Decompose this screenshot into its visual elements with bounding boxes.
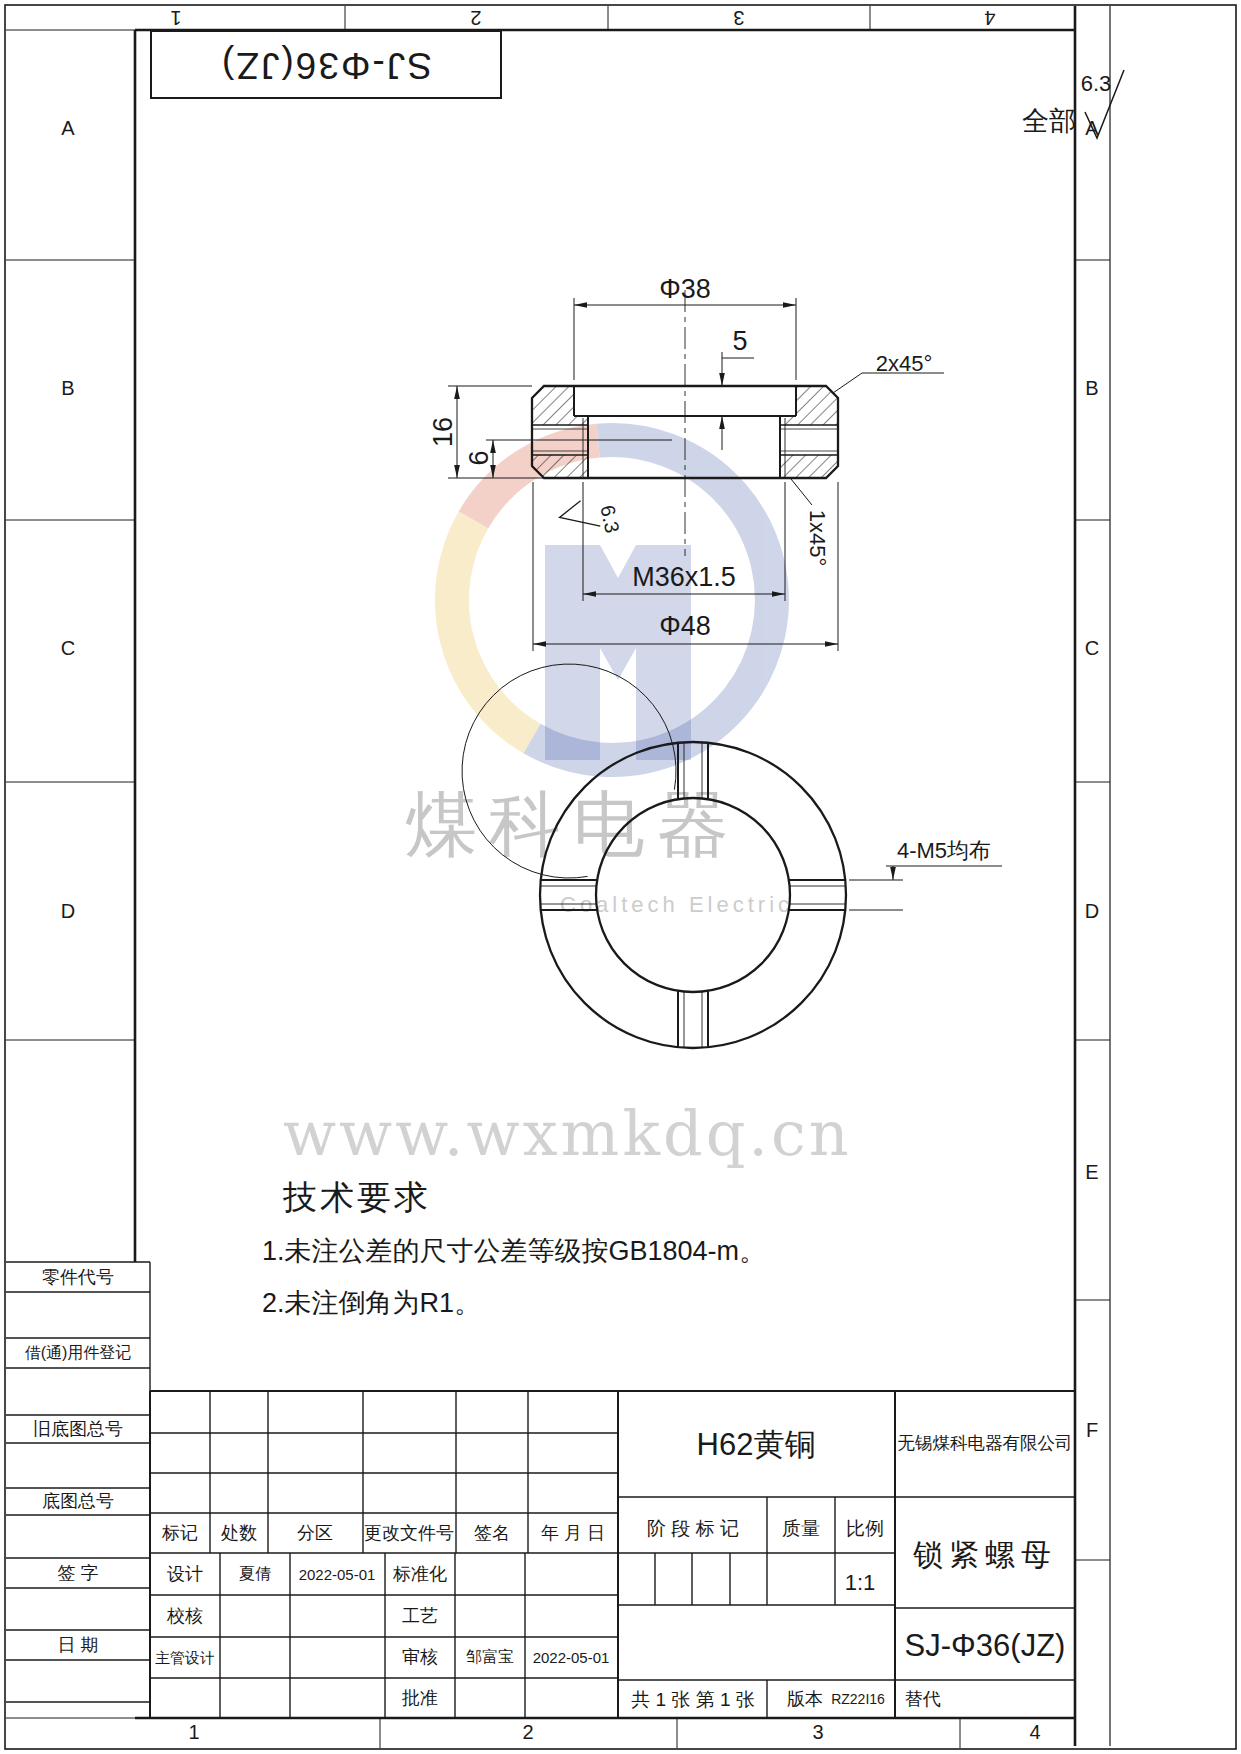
dim-thread: M36x1.5 [632,564,736,591]
rev-header-file: 更改文件号 [364,1524,454,1542]
zone-number-bottom: 3 [812,1722,823,1742]
drawing-linework [0,0,1241,1754]
version-label: 版本 [787,1690,823,1708]
zone-number-bottom: 1 [188,1722,199,1742]
dim-step-depth: 5 [732,328,747,355]
sig-chief-label: 主管设计 [155,1650,215,1665]
drawing-sheet: 煤科电器 Coaltech Electric www.wxmkdq.cn [0,0,1241,1754]
sig-audit-date: 2022-05-01 [533,1650,610,1665]
chamfer-bottom-label: 1x45° [806,510,828,567]
finish-scope-label: 全部 [1022,108,1076,135]
sig-process-label: 工艺 [402,1607,438,1625]
scale-value: 1:1 [845,1572,876,1594]
mass-label: 质量 [782,1519,820,1538]
zone-letter-left: D [61,901,75,921]
material: H62黄铜 [697,1429,816,1460]
dim-phi48: Φ48 [659,613,711,640]
margin-box-sheet-no: 底图总号 [42,1492,114,1510]
zone-number-bottom: 4 [1029,1722,1040,1742]
sig-check-label: 校核 [167,1607,203,1625]
margin-box-sign: 签 字 [57,1564,98,1582]
sheet-info: 共 1 张 第 1 张 [631,1690,755,1709]
company-name: 无锡煤科电器有限公司 [898,1435,1073,1453]
rev-header-zone: 分区 [297,1524,333,1542]
chamfer-top-label: 2x45° [876,353,933,375]
margin-box-old-sheet-no: 旧底图总号 [33,1420,123,1438]
sig-standard-label: 标准化 [393,1565,447,1583]
sig-approve-label: 批准 [402,1689,438,1707]
sig-design-date: 2022-05-01 [299,1567,376,1582]
zone-letter-right: E [1085,1162,1098,1182]
margin-box-borrow-reg: 借(通)用件登记 [25,1345,132,1361]
flipped-part-number-box: SJ-Φ36(JZ) [150,30,502,99]
tech-req-title: 技术要求 [283,1180,431,1214]
zone-letter-left: C [61,638,75,658]
margin-box-part-code: 零件代号 [42,1268,114,1286]
zone-number-top: 4 [984,8,995,28]
margin-box-date: 日 期 [57,1636,98,1654]
dim-height: 16 [430,417,457,447]
zone-letter-left: B [61,378,74,398]
part-name: 锁紧螺母 [913,1540,1057,1570]
zone-letter-right: F [1086,1420,1098,1440]
dim-phi38: Φ38 [659,276,711,303]
sig-design-label: 设计 [167,1565,203,1583]
scale-label: 比例 [846,1519,884,1538]
tech-req-item: 1.未注公差的尺寸公差等级按GB1804-m。 [262,1238,766,1265]
finish-value-section: 6.3 [597,503,622,534]
zone-number-bottom: 2 [522,1722,533,1742]
dim-m5-height: 6 [466,450,493,465]
stage-label: 阶 段 标 记 [647,1519,739,1538]
sig-audit-name: 邹富宝 [466,1649,514,1665]
zone-letter-right: B [1085,378,1098,398]
sig-audit-label: 审核 [402,1648,438,1666]
tech-req-item: 2.未注倒角为R1。 [262,1290,481,1317]
sig-design-name: 夏倩 [239,1566,271,1582]
rev-header-date: 年 月 日 [541,1524,605,1542]
drawing-number: SJ-Φ36(JZ) [905,1630,1066,1661]
rev-header-count: 处数 [221,1524,257,1542]
zone-number-top: 3 [733,8,744,28]
zone-number-top: 2 [470,8,481,28]
holes-label: 4-M5均布 [897,840,991,862]
rev-header-mark: 标记 [162,1524,198,1542]
rev-header-sign: 签名 [474,1524,510,1542]
zone-letter-right: A [1085,118,1098,138]
finish-value: 6.3 [1081,73,1112,95]
zone-letter-left: A [61,118,74,138]
version-value: RZ22I16 [831,1692,885,1706]
zone-letter-right: C [1085,638,1099,658]
zone-number-top: 1 [170,8,181,28]
replace-label: 替代 [905,1690,941,1708]
flipped-part-number: SJ-Φ36(JZ) [220,44,432,86]
zone-letter-right: D [1085,901,1099,921]
